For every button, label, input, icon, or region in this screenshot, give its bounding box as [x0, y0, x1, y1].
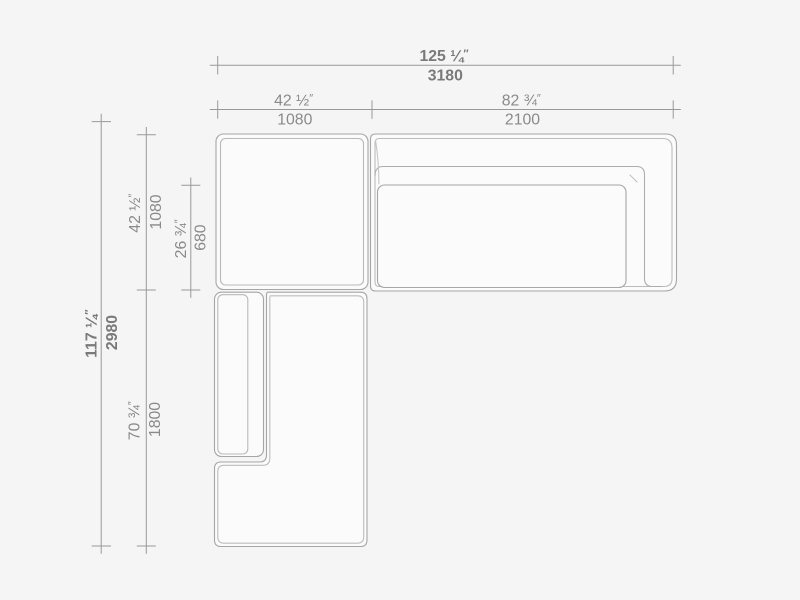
svg-text:1080: 1080: [148, 194, 165, 229]
svg-text:26 ¾″: 26 ¾″: [173, 219, 190, 258]
svg-text:125 ¼″: 125 ¼″: [419, 48, 469, 65]
svg-text:2100: 2100: [505, 112, 540, 129]
svg-text:42 ½″: 42 ½″: [274, 93, 313, 110]
svg-text:2980: 2980: [104, 315, 121, 350]
svg-text:1800: 1800: [147, 402, 164, 437]
svg-text:1080: 1080: [277, 112, 312, 129]
svg-text:70 ¾″: 70 ¾″: [127, 401, 144, 440]
svg-text:680: 680: [192, 224, 209, 251]
svg-text:42 ½″: 42 ½″: [127, 194, 144, 233]
svg-text:3180: 3180: [428, 68, 463, 85]
svg-text:117 ¼″: 117 ¼″: [84, 309, 101, 358]
svg-text:82 ¾″: 82 ¾″: [502, 93, 541, 110]
